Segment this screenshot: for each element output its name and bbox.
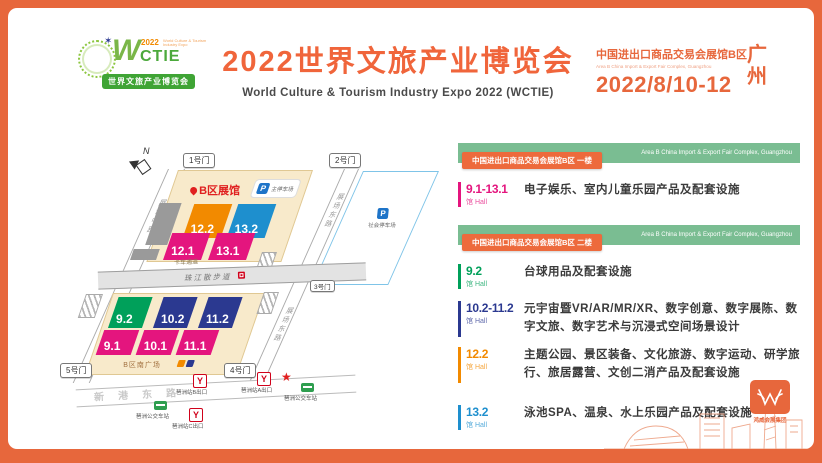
legend-row-9-2: 9.2 馆 Hall 台球用品及配套设施 — [458, 264, 800, 289]
gate-2: 2号门 — [329, 153, 361, 168]
metro-exit-a-label: 琶洲站A出口 — [241, 386, 272, 394]
floor2-badge: 中国进出口商品交易会展馆B区 二楼 — [462, 234, 602, 251]
hall-description: 电子娱乐、室内儿童乐园产品及配套设施 — [524, 182, 800, 207]
winged-w-icon — [756, 386, 784, 408]
hall-9-1: 9.1 — [96, 330, 140, 355]
gray-building-annex — [130, 249, 160, 260]
star-marker-icon: ★ — [281, 370, 292, 384]
event-date: 2022/8/10-12 — [596, 72, 740, 98]
hall-suffix: 馆 Hall — [466, 362, 524, 372]
promenade-label: 珠江散步道 — [184, 271, 232, 284]
hall-range: 13.2 — [466, 405, 524, 419]
parking-icon: P — [377, 208, 389, 219]
logo-letters-ctie: CTIE — [140, 48, 180, 66]
expo-logo: ✶ W 2022 World Culture & Tourism Industr… — [78, 34, 206, 100]
hall-12-1: 12.1 — [163, 233, 210, 260]
hall-range: 9.2 — [466, 264, 524, 278]
bus-stop-label: 琶洲公交车站 — [136, 412, 169, 420]
hall-range-col: 10.2-11.2 馆 Hall — [458, 301, 524, 337]
hall-10-1-label: 10.1 — [144, 339, 167, 353]
city-char-2: 州 — [744, 66, 770, 88]
hall-range: 10.2-11.2 — [466, 301, 524, 315]
entrance-marker-icon — [238, 272, 245, 279]
hall-range: 12.2 — [466, 347, 524, 361]
header-title-block: 2022世界文旅产业博览会 World Culture & Tourism In… — [204, 38, 592, 99]
hall-suffix: 馆 Hall — [466, 279, 524, 289]
hall-9-2-label: 9.2 — [116, 312, 133, 326]
bus-stop-icon — [154, 401, 167, 410]
plaza-label: B区南广场 — [123, 360, 161, 370]
gate-5: 5号门 — [60, 363, 92, 378]
page-title: 2022世界文旅产业博览会 — [204, 38, 592, 80]
area-b-text: B区展馆 — [199, 185, 240, 197]
bus-stop-label: 琶洲公交车站 — [284, 394, 317, 402]
hall-9-1-label: 9.1 — [104, 339, 121, 353]
floor1-bar-en: Area B China Import & Export Fair Comple… — [641, 150, 792, 156]
parking-north-label: 主停车场 — [270, 185, 295, 193]
hall-range: 9.1-13.1 — [466, 182, 524, 196]
organizer-name: 鸿威会展集团 — [745, 416, 795, 424]
hall-11-2: 11.2 — [198, 297, 243, 328]
location-pin-icon — [189, 186, 199, 196]
hall-description: 主题公园、景区装备、文化旅游、数字运动、研学旅行、旅居露营、文创二消产品及配套设… — [524, 347, 800, 383]
hall-10-2-label: 10.2 — [161, 312, 184, 326]
logo-tagline: World Culture & Tourism Industry Expo — [163, 39, 207, 48]
organizer-logo-icon — [750, 380, 790, 414]
hall-description: 台球用品及配套设施 — [524, 264, 800, 289]
page-subtitle-en: World Culture & Tourism Industry Expo 20… — [204, 87, 592, 99]
hall-suffix: 馆 Hall — [466, 316, 524, 326]
hall-10-1: 10.1 — [136, 330, 180, 355]
legend-row-10-2-11-2: 10.2-11.2 馆 Hall 元宇宙暨VR/AR/MR/XR、数字创意、数字… — [458, 301, 800, 337]
metro-exit-b-label: 琶洲站B出口 — [176, 388, 207, 396]
hall-suffix: 馆 Hall — [466, 197, 524, 207]
service-icon — [177, 360, 186, 367]
floor2-bar-en: Area B China Import & Export Fair Comple… — [641, 232, 792, 238]
logo-subtitle: 世界文旅产业博览会 — [102, 74, 195, 89]
venue-block: 中国进出口商品交易会展馆B区 Area B China Import & Exp… — [596, 46, 740, 98]
hall-9-2: 9.2 — [108, 297, 153, 328]
venue-map: N 展场中路 展场东路 展场东路 P 社会停车场 — [48, 136, 468, 449]
road-east-label-bottom: 展场东路 — [270, 307, 296, 343]
hall-description: 元宇宙暨VR/AR/MR/XR、数字创意、数字展陈、数字文旅、数字艺术与沉浸式空… — [524, 301, 800, 337]
compass-n-label: N — [143, 146, 150, 156]
poster-frame: ✶ W 2022 World Culture & Tourism Industr… — [0, 0, 822, 463]
metro-exit-c-label: 琶洲站C出口 — [172, 422, 203, 430]
hall-range-col: 9.1-13.1 馆 Hall — [458, 182, 524, 207]
hall-11-1: 11.1 — [176, 330, 220, 355]
venue-name-en: Area B China Import & Export Fair Comple… — [596, 64, 740, 69]
service-icon — [186, 360, 195, 367]
hall-13-1: 13.1 — [208, 233, 255, 260]
hall-range-col: 9.2 馆 Hall — [458, 264, 524, 289]
hall-11-1-label: 11.1 — [184, 339, 207, 353]
logo-letter-w: W — [112, 34, 140, 68]
parking-icon: P — [256, 183, 271, 194]
venue-name-cn: 中国进出口商品交易会展馆B区 — [596, 46, 740, 62]
poster-canvas: ✶ W 2022 World Culture & Tourism Industr… — [8, 8, 814, 449]
hall-range-col: 13.2 馆 Hall — [458, 405, 524, 430]
logo-year: 2022 — [141, 38, 159, 47]
area-b-label: B区展馆 — [190, 182, 240, 198]
hall-11-2-label: 11.2 — [206, 312, 229, 326]
city-name: 广 州 — [744, 44, 770, 88]
parking-east-label: 社会停车场 — [368, 221, 396, 229]
hall-suffix: 馆 Hall — [466, 420, 524, 430]
organizer-logo: 鸿威会展集团 — [745, 380, 795, 424]
legend-row-12-2: 12.2 馆 Hall 主题公园、景区装备、文化旅游、数字运动、研学旅行、旅居露… — [458, 347, 800, 383]
gate-4: 4号门 — [224, 363, 256, 378]
parking-box-north: P 主停车场 — [249, 179, 302, 198]
gate-1: 1号门 — [183, 153, 215, 168]
compass-icon: N — [131, 150, 155, 176]
metro-icon: Y — [193, 374, 207, 388]
hall-13-1-label: 13.1 — [216, 244, 239, 258]
stairs-icon — [78, 294, 103, 318]
gate-3: 3号门 — [310, 280, 335, 292]
hall-10-2: 10.2 — [153, 297, 198, 328]
truck-lane-label: 卡车通道 — [174, 257, 198, 267]
hall-range-col: 12.2 馆 Hall — [458, 347, 524, 383]
floor1-badge: 中国进出口商品交易会展馆B区 一楼 — [462, 152, 602, 169]
metro-icon: Y — [189, 408, 203, 422]
metro-icon: Y — [257, 372, 271, 386]
bus-stop-icon — [301, 383, 314, 392]
city-char-1: 广 — [744, 44, 770, 66]
legend-row-9-1-13-1: 9.1-13.1 馆 Hall 电子娱乐、室内儿童乐园产品及配套设施 — [458, 182, 800, 207]
